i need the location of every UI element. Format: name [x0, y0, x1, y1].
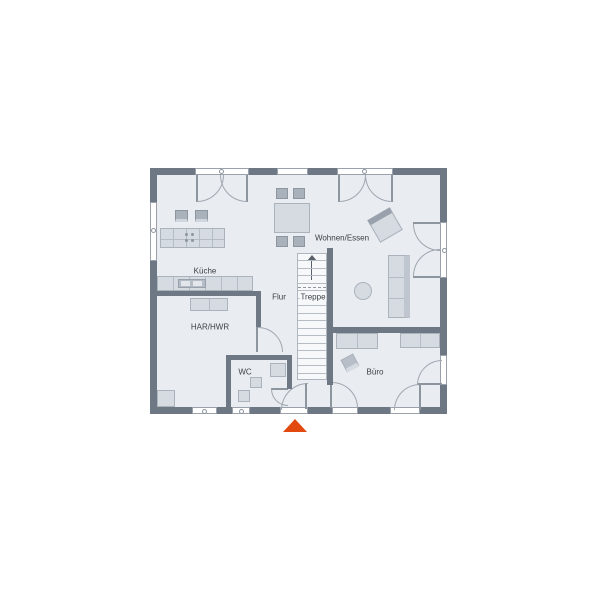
kitchen-island — [160, 228, 225, 248]
stair-tread — [298, 320, 326, 321]
stair-tread — [298, 268, 326, 269]
cooktop-burner — [185, 239, 188, 242]
room-label-wohnen-essen: Wohnen/Essen — [315, 234, 369, 243]
toilet — [250, 377, 262, 388]
window-marker — [442, 248, 447, 253]
stair-tread — [298, 283, 326, 284]
stair-tread — [298, 328, 326, 329]
stair-tread — [298, 290, 326, 291]
stair-tread — [298, 373, 326, 374]
dining-table — [274, 203, 310, 233]
dining-chair — [276, 188, 288, 199]
wall-wc-right — [287, 360, 292, 389]
room-label-treppe: Treppe — [299, 293, 326, 302]
desk — [336, 333, 378, 349]
floorplan-canvas: Küche Wohnen/Essen Flur Treppe HAR/HWR W… — [0, 0, 600, 600]
wall-kitchen-har — [150, 291, 261, 296]
stair-tread — [298, 313, 326, 314]
sofa — [388, 255, 410, 318]
sink-bowl — [193, 281, 202, 286]
wc-cabinet — [238, 390, 250, 402]
entrance-triangle-icon — [283, 419, 307, 432]
kitchen-sink — [178, 279, 206, 288]
coffee-table — [354, 282, 372, 300]
dining-chair — [293, 188, 305, 199]
wall-wc-left — [226, 355, 231, 407]
window-dining — [277, 168, 308, 175]
room-label-kueche: Küche — [194, 267, 217, 276]
stair-tread — [298, 343, 326, 344]
washing-machine — [190, 298, 228, 311]
stair-tread — [298, 305, 326, 306]
room-label-buero: Büro — [367, 368, 384, 377]
window-office-bottom-1 — [332, 407, 358, 414]
wall-staircase — [327, 248, 333, 385]
stair-tread — [298, 365, 326, 366]
door-leaf — [413, 276, 440, 278]
desk-sideboard — [400, 333, 440, 348]
cooktop-burner — [191, 239, 194, 242]
stair-tread — [298, 358, 326, 359]
window-marker — [151, 228, 156, 233]
bar-stool — [175, 210, 188, 222]
stair-direction-line — [311, 260, 312, 280]
sink-bowl — [181, 281, 190, 286]
cooktop-burner — [191, 233, 194, 236]
staircase — [297, 253, 327, 380]
wall-har-flur — [256, 291, 261, 327]
window-marker — [219, 169, 224, 174]
wall-wc-top — [226, 355, 292, 360]
window-marker — [362, 169, 367, 174]
stair-tread — [298, 350, 326, 351]
floorplan: Küche Wohnen/Essen Flur Treppe HAR/HWR W… — [150, 168, 447, 414]
room-label-wc: WC — [238, 368, 251, 377]
room-label-flur: Flur — [272, 293, 286, 302]
dining-chair — [293, 236, 305, 247]
bar-stool — [195, 210, 208, 222]
dining-chair — [276, 236, 288, 247]
stair-walk-line — [298, 287, 326, 288]
room-label-har-hwr: HAR/HWR — [191, 323, 229, 332]
stair-tread — [298, 260, 326, 261]
wc-sink — [270, 363, 286, 377]
stair-tread — [298, 275, 326, 276]
stair-tread — [298, 335, 326, 336]
window-marker — [239, 409, 244, 414]
utility-cabinet — [157, 390, 175, 407]
window-marker — [202, 409, 207, 414]
cooktop-burner — [185, 233, 188, 236]
